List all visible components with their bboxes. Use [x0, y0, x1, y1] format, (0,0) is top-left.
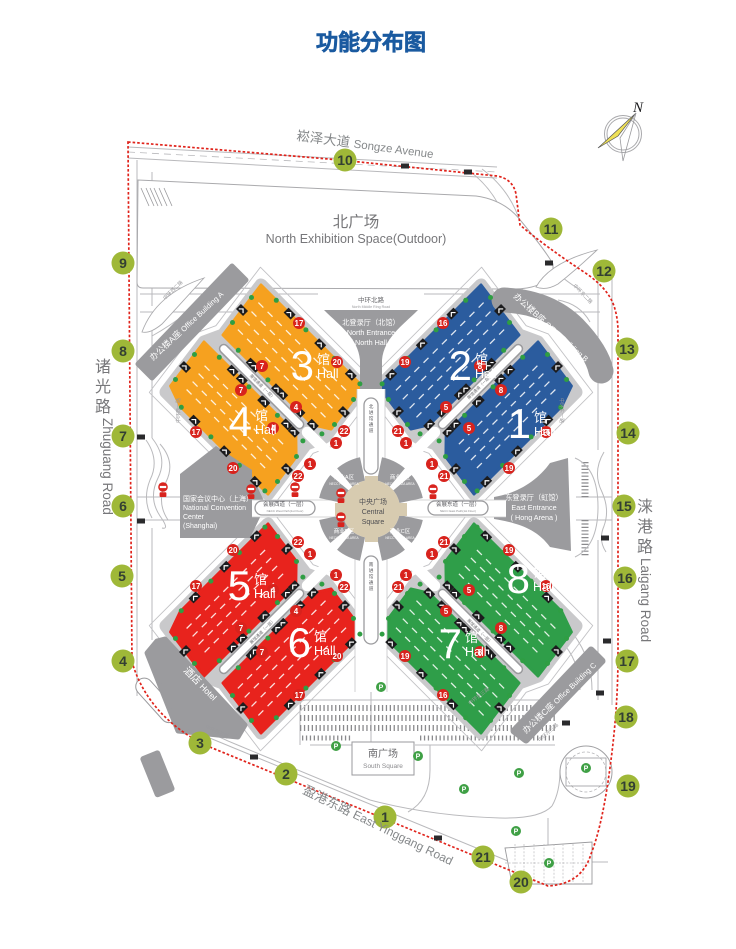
svg-text:( Hong Arena ): ( Hong Arena ) — [511, 513, 558, 522]
svg-text:P: P — [514, 829, 519, 836]
svg-text:19: 19 — [505, 546, 514, 555]
svg-text:22: 22 — [294, 538, 303, 547]
svg-text:21: 21 — [394, 427, 403, 436]
svg-text:Hall: Hall — [314, 644, 336, 658]
svg-text:5: 5 — [467, 586, 472, 595]
svg-text:Zhuguang Road: Zhuguang Road — [100, 418, 115, 515]
svg-text:2: 2 — [449, 342, 472, 389]
svg-text:N: N — [632, 100, 644, 116]
svg-text:涞: 涞 — [637, 498, 653, 516]
svg-text:21: 21 — [475, 849, 491, 865]
svg-text:7: 7 — [260, 648, 265, 657]
svg-text:商业C区: 商业C区 — [390, 527, 411, 535]
svg-text:中环东一路: 中环东一路 — [558, 398, 565, 423]
svg-text:北: 北 — [369, 403, 374, 410]
svg-text:7: 7 — [260, 362, 265, 371]
svg-text:3: 3 — [196, 735, 204, 751]
svg-text:8: 8 — [507, 555, 530, 602]
svg-text:P: P — [379, 685, 384, 692]
svg-text:P: P — [547, 861, 552, 868]
svg-text:6: 6 — [288, 619, 311, 666]
svg-text:通: 通 — [369, 421, 374, 428]
svg-text:20: 20 — [229, 546, 238, 555]
svg-text:7: 7 — [239, 386, 244, 395]
svg-text:Hall: Hall — [465, 645, 487, 659]
svg-text:South Square: South Square — [363, 763, 403, 770]
svg-text:1: 1 — [334, 439, 339, 448]
svg-text:馆: 馆 — [369, 573, 374, 580]
svg-text:馆: 馆 — [314, 629, 327, 644]
svg-text:North Exhibition Space(Outdoor: North Exhibition Space(Outdoor) — [266, 232, 447, 246]
svg-text:馆: 馆 — [534, 410, 547, 425]
svg-text:北登录厅（北馆）: 北登录厅（北馆） — [342, 318, 400, 327]
svg-text:馆: 馆 — [255, 408, 268, 423]
svg-text:Central: Central — [362, 509, 385, 516]
svg-text:7: 7 — [439, 620, 462, 667]
svg-text:1: 1 — [308, 460, 313, 469]
svg-text:4: 4 — [229, 398, 252, 445]
svg-text:8: 8 — [119, 343, 127, 359]
svg-text:东登录厅（虹馆）: 东登录厅（虹馆） — [505, 493, 563, 502]
svg-text:10: 10 — [337, 152, 353, 168]
svg-text:11: 11 — [544, 221, 559, 237]
svg-text:进: 进 — [369, 567, 374, 574]
svg-text:4: 4 — [119, 653, 127, 669]
svg-text:NECC PLAZA AREA: NECC PLAZA AREA — [329, 536, 359, 540]
svg-text:8: 8 — [499, 386, 504, 395]
svg-text:16: 16 — [439, 319, 448, 328]
svg-text:Hall: Hall — [254, 587, 276, 601]
svg-text:Hall: Hall — [317, 367, 339, 381]
svg-text:Hall: Hall — [533, 580, 555, 594]
svg-text:21: 21 — [440, 538, 449, 547]
svg-text:通: 通 — [369, 579, 374, 586]
svg-text:会展西道（一层）: 会展西道（一层） — [263, 500, 307, 508]
svg-text:7: 7 — [239, 624, 244, 633]
svg-text:馆: 馆 — [254, 572, 267, 587]
svg-text:20: 20 — [513, 874, 529, 890]
svg-text:19: 19 — [505, 464, 514, 473]
svg-text:1: 1 — [334, 571, 339, 580]
svg-text:18: 18 — [618, 709, 634, 725]
svg-text:19: 19 — [401, 652, 410, 661]
svg-text:22: 22 — [294, 472, 303, 481]
svg-text:4: 4 — [294, 403, 299, 412]
svg-text:馆: 馆 — [317, 352, 330, 367]
svg-text:路: 路 — [637, 538, 653, 556]
svg-text:21: 21 — [440, 472, 449, 481]
svg-text:(Shanghai): (Shanghai) — [183, 523, 217, 530]
svg-text:19: 19 — [401, 358, 410, 367]
svg-text:1: 1 — [308, 550, 313, 559]
svg-text:20: 20 — [333, 358, 342, 367]
svg-text:Center: Center — [183, 514, 205, 521]
svg-text:商业A区: 商业A区 — [334, 473, 355, 481]
svg-text:P: P — [416, 754, 421, 761]
svg-text:12: 12 — [596, 263, 612, 279]
svg-text:17: 17 — [192, 582, 201, 591]
svg-text:进: 进 — [369, 409, 374, 416]
svg-text:中环北路: 中环北路 — [358, 295, 385, 304]
svg-text:9: 9 — [119, 255, 127, 271]
svg-text:南: 南 — [369, 561, 374, 567]
svg-text:Hall: Hall — [534, 425, 556, 439]
svg-text:North Middle Ring Road: North Middle Ring Road — [352, 305, 390, 309]
svg-text:路: 路 — [95, 398, 111, 416]
svg-text:Laigang Road: Laigang Road — [638, 558, 653, 642]
svg-text:1: 1 — [430, 550, 435, 559]
svg-text:NECC West Path(1st Floor): NECC West Path(1st Floor) — [267, 509, 304, 513]
svg-text:17: 17 — [619, 653, 635, 669]
svg-text:3: 3 — [291, 342, 314, 389]
svg-text:1: 1 — [404, 571, 409, 580]
svg-text:16: 16 — [617, 570, 633, 586]
svg-text:P: P — [334, 744, 339, 751]
svg-text:( North Hall ): ( North Hall ) — [351, 338, 392, 347]
svg-text:馆: 馆 — [475, 352, 488, 367]
svg-text:光: 光 — [95, 378, 111, 396]
svg-text:道: 道 — [369, 585, 374, 592]
svg-text:21: 21 — [394, 583, 403, 592]
svg-text:14: 14 — [620, 425, 636, 441]
svg-text:19: 19 — [620, 778, 636, 794]
svg-text:5: 5 — [467, 424, 472, 433]
svg-text:馆: 馆 — [465, 630, 478, 645]
svg-text:中环西一路: 中环西一路 — [175, 398, 182, 423]
svg-text:2: 2 — [282, 766, 290, 782]
svg-text:17: 17 — [295, 691, 304, 700]
svg-text:17: 17 — [192, 428, 201, 437]
svg-text:商业D区: 商业D区 — [334, 527, 355, 535]
svg-text:南广场: 南广场 — [368, 747, 398, 760]
svg-text:4: 4 — [294, 607, 299, 616]
svg-text:North Entrance: North Entrance — [347, 328, 395, 337]
svg-text:1: 1 — [430, 460, 435, 469]
svg-text:East Entrance: East Entrance — [511, 503, 556, 512]
svg-text:22: 22 — [340, 583, 349, 592]
svg-text:1: 1 — [404, 439, 409, 448]
svg-text:诸: 诸 — [95, 358, 111, 376]
svg-text:P: P — [462, 787, 467, 794]
svg-text:7: 7 — [119, 428, 127, 444]
svg-text:商业B区: 商业B区 — [390, 473, 411, 481]
svg-text:馆: 馆 — [369, 415, 374, 422]
svg-text:6: 6 — [119, 498, 127, 514]
svg-text:馆: 馆 — [533, 565, 546, 580]
svg-text:13: 13 — [619, 341, 635, 357]
svg-text:港: 港 — [637, 518, 653, 536]
svg-text:National Convention: National Convention — [183, 505, 246, 512]
svg-text:5: 5 — [444, 607, 449, 616]
svg-text:1: 1 — [508, 400, 531, 447]
svg-text:Square: Square — [362, 519, 385, 526]
svg-text:道: 道 — [369, 427, 374, 434]
svg-text:P: P — [584, 766, 589, 773]
svg-text:P: P — [517, 771, 522, 778]
svg-text:5: 5 — [444, 403, 449, 412]
svg-text:Hall: Hall — [255, 423, 277, 437]
svg-text:5: 5 — [228, 562, 251, 609]
svg-text:20: 20 — [229, 464, 238, 473]
svg-text:NECC PLAZA AREA: NECC PLAZA AREA — [385, 482, 415, 486]
svg-text:17: 17 — [295, 319, 304, 328]
svg-text:8: 8 — [499, 624, 504, 633]
svg-text:5: 5 — [118, 568, 126, 584]
svg-text:22: 22 — [340, 427, 349, 436]
svg-text:15: 15 — [616, 498, 632, 514]
svg-text:16: 16 — [439, 691, 448, 700]
svg-text:NECC PLAZA AREA: NECC PLAZA AREA — [329, 482, 359, 486]
svg-text:国家会议中心（上海）: 国家会议中心（上海） — [183, 494, 253, 503]
svg-text:中央广场: 中央广场 — [359, 497, 387, 506]
svg-text:会展东道（一层）: 会展东道（一层） — [436, 500, 480, 508]
svg-text:NECC PLAZA AREA: NECC PLAZA AREA — [385, 536, 415, 540]
svg-text:北广场: 北广场 — [333, 213, 380, 231]
svg-text:Hall: Hall — [475, 367, 497, 381]
svg-text:NECC East Path(1st Floor): NECC East Path(1st Floor) — [440, 509, 476, 513]
svg-text:功能分布图: 功能分布图 — [316, 30, 426, 55]
